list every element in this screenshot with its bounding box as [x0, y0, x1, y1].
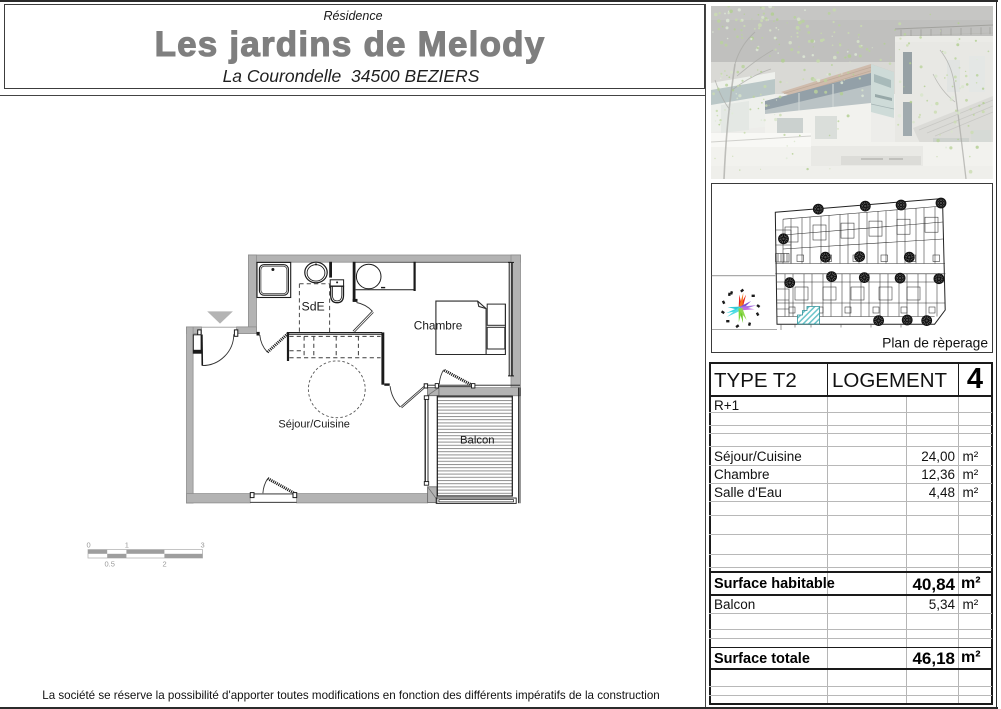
- svg-text:Séjour/Cuisine: Séjour/Cuisine: [278, 419, 350, 431]
- svg-text:0.5: 0.5: [105, 560, 115, 569]
- svg-text:Balcon: Balcon: [460, 435, 495, 447]
- svg-text:Plan de rèperage: Plan de rèperage: [882, 336, 988, 351]
- svg-text:Chambre: Chambre: [414, 319, 463, 333]
- svg-text:1: 1: [125, 541, 129, 550]
- svg-text:3: 3: [201, 541, 205, 550]
- svg-text:2: 2: [163, 560, 167, 569]
- svg-text:0: 0: [87, 541, 91, 550]
- svg-text:SdE: SdE: [302, 300, 325, 314]
